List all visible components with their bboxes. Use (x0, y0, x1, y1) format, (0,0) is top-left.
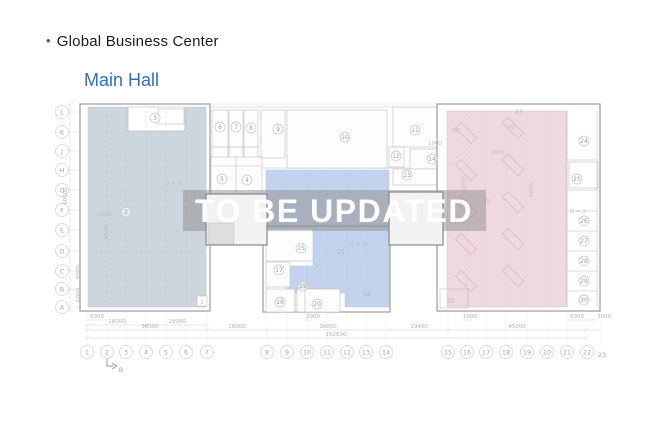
dimension-label: 152600 (326, 332, 347, 338)
grid-number: 2 (105, 348, 109, 356)
grid-number: 11 (323, 348, 331, 356)
grid-number: 3 (124, 348, 128, 356)
room-number: 9 (276, 126, 280, 133)
annotation-label: 1900 (490, 150, 504, 156)
room-number: 13 (403, 172, 411, 179)
dimension-label: 36000 (319, 324, 337, 330)
annotation-label: 2000 (97, 212, 111, 218)
room-number: 20 (313, 301, 321, 308)
grid-letter: F (60, 206, 64, 214)
dimension-label: 6000 (570, 314, 584, 320)
dimension-label: 18000 (228, 324, 246, 330)
grid-letter: E (60, 226, 64, 234)
room-number: 10 (341, 134, 349, 141)
grid-number: 7 (205, 348, 209, 356)
annotation-label: Q = 3 (570, 209, 586, 215)
grid-letter: J (60, 147, 63, 155)
room-number: 28 (580, 258, 588, 265)
grid-number: 15 (444, 348, 452, 356)
annotation-label: 45° (451, 128, 461, 134)
grid-letter: H (60, 166, 65, 174)
grid-number: 17 (482, 348, 490, 356)
grid-number: 6 (184, 348, 188, 356)
room-number: 23 (515, 109, 523, 116)
dimension-label: 18000 (168, 319, 186, 325)
room-number: 32 (447, 298, 455, 305)
room-number: 6 (218, 124, 222, 131)
grid-number: 4 (144, 348, 148, 356)
grid-number: 14 (382, 348, 390, 356)
grid-letter: A (60, 303, 65, 311)
room-number: 18 (276, 299, 284, 306)
room-number: 1 (200, 299, 204, 306)
room-number: 14 (428, 156, 436, 163)
dimension-label: 19400 (410, 324, 428, 330)
dimension-label: 1000 (463, 314, 477, 320)
room-number: 25 (573, 176, 581, 183)
room-number: 30 (580, 297, 588, 304)
floor-plan: LKJHGFEDCBA12345678910111213141516171819… (0, 0, 660, 440)
annotation-label: 45° (507, 125, 517, 131)
annotation-label: Q = 3 (165, 181, 181, 187)
section-marker-label: B (119, 366, 123, 374)
room-number: 22 (363, 291, 371, 298)
grid-number: 21 (563, 348, 571, 356)
dimension-label: 6000 (90, 314, 104, 320)
room-number: 17 (275, 267, 283, 274)
grid-number: 19 (523, 348, 531, 356)
grid-letter: C (60, 267, 65, 275)
grid-letter: D (59, 247, 64, 255)
grid-number: 1 (85, 348, 89, 356)
grid-number: 8 (265, 348, 269, 356)
grid-number: 18 (502, 348, 510, 356)
dimension-label: 60000 (63, 187, 69, 205)
room-number: 26 (580, 218, 588, 225)
grid-letter: K (60, 128, 65, 136)
dimension-label: 2000 (306, 314, 320, 320)
grid-number: 16 (463, 348, 471, 356)
dimension-label: 18000 (108, 319, 126, 325)
grid-number: 5 (164, 348, 168, 356)
grid-number: 20 (543, 348, 551, 356)
watermark-text: TO BE UPDATED (195, 193, 473, 229)
room-number: 27 (580, 238, 588, 245)
grid-number: 22 (583, 348, 591, 356)
dimension-label: 3000 (597, 314, 611, 320)
grid-number: 9 (285, 348, 289, 356)
grid-letter: B (60, 285, 64, 293)
room-number: 12 (392, 153, 400, 160)
slide: •Global Business Center Main Hall (0, 0, 660, 440)
dimension-label: 36000 (141, 324, 159, 330)
room-number: 2 (124, 209, 128, 216)
dimension-label: 6000 (76, 265, 82, 279)
room-number: 24 (580, 138, 588, 145)
annotation-label: 5000 (104, 225, 110, 239)
grid-number: 13 (362, 348, 370, 356)
grid-letter: L (60, 108, 64, 116)
room-number: 31 (482, 198, 490, 205)
annotation-label: Q = 3 (350, 242, 366, 248)
room-number: 4 (245, 177, 249, 184)
room-number: 7 (234, 124, 238, 131)
grid-number: 10 (303, 348, 311, 356)
room-number: 29 (580, 278, 588, 285)
room-number: 21 (337, 249, 345, 256)
annotation-label: 1000 (428, 141, 442, 147)
room-number: 19 (299, 283, 307, 290)
dimension-label: 45000 (508, 324, 526, 330)
grid-number: 12 (343, 348, 351, 356)
room-number: 5 (220, 176, 224, 183)
dimension-label: 6000 (76, 288, 82, 302)
room-number: 8 (249, 125, 253, 132)
grid-number: 23 (598, 351, 606, 359)
room-number: 15 (297, 245, 305, 252)
room-number: 11 (411, 127, 419, 134)
annotation-label: 6000 (529, 183, 535, 197)
annotation-label: 6000 (461, 177, 467, 191)
room-number: 3 (153, 115, 157, 122)
